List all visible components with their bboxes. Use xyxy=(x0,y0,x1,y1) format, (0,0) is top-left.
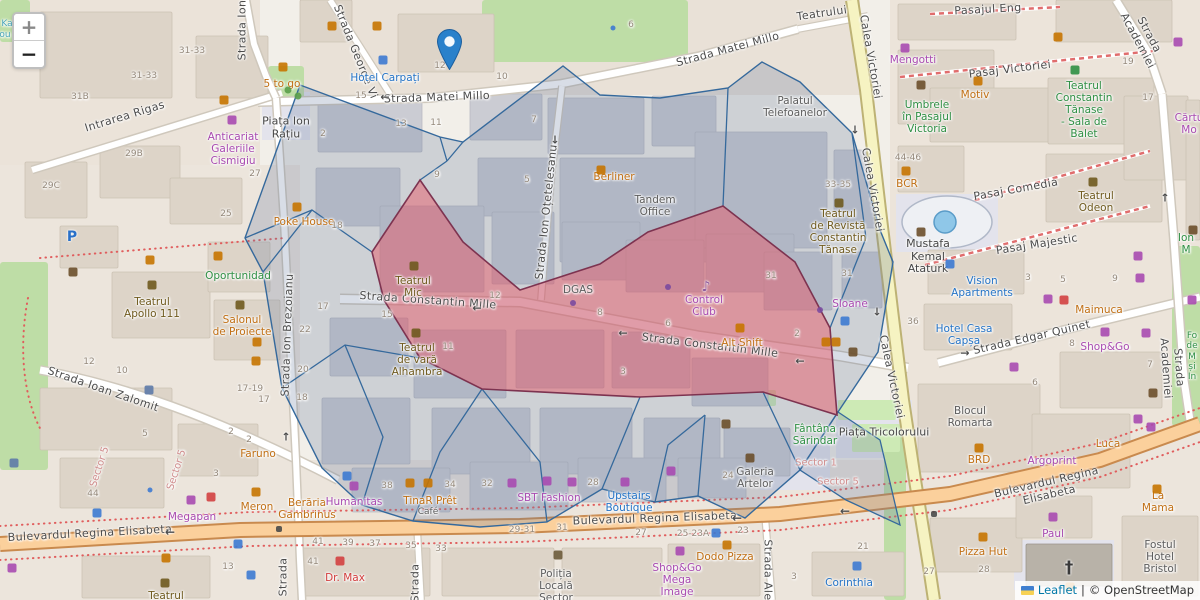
housenumber: 18 xyxy=(296,393,307,403)
housenumber: 24 xyxy=(722,471,733,481)
street-strada-constantin-mille-2: Strada Constantin Mille xyxy=(641,331,779,360)
theatre-masks-icon xyxy=(412,329,421,338)
poi-ion-m: Ion M xyxy=(1178,232,1194,256)
housenumber: 7 xyxy=(1147,360,1153,370)
poi-salonul-de-proiecte: Salonul de Proiecte xyxy=(213,314,272,338)
clothes-icon xyxy=(543,477,552,486)
bus-stop-icon xyxy=(712,529,721,538)
fastfood-icon xyxy=(214,252,223,261)
poi-dgas: DGAS xyxy=(563,284,593,296)
poi-poke-house: Poke House xyxy=(274,216,335,228)
housenumber: 2 xyxy=(246,435,252,445)
monument-icon xyxy=(69,268,78,277)
poi-pizza-hut: Pizza Hut xyxy=(959,546,1007,558)
poi-faruno: Faruno xyxy=(240,448,276,460)
poi-teatrul-constantin-tanase-sala-de-balet: Teatrul Constantin Tănase - Sala de Bale… xyxy=(1056,80,1113,140)
housenumber: 21 xyxy=(857,542,868,552)
dot-icon xyxy=(611,26,616,31)
housenumber: 20 xyxy=(297,365,308,375)
street-strada-ion-brezoianu: Strada Ion Brezoianu xyxy=(280,273,297,396)
monument-icon xyxy=(917,81,926,90)
money-icon xyxy=(1149,389,1158,398)
poi-berliner: Berliner xyxy=(593,171,634,183)
zoom-out-button[interactable]: − xyxy=(14,41,44,67)
street-calea-victoriei-2: Calea Victoriei xyxy=(858,147,885,233)
housenumber: 31 xyxy=(556,523,567,533)
jeans-icon xyxy=(247,571,256,580)
theatre-masks-icon xyxy=(161,579,170,588)
theatre-masks-icon xyxy=(236,301,245,310)
housenumber: 3 xyxy=(1025,273,1031,283)
housenumber: 35 xyxy=(405,541,416,551)
street-strada-george-v: Strada George Vi xyxy=(330,3,379,101)
street-strada-constantin-mille-1: Strada Constantin Mille xyxy=(359,290,497,312)
poi-alt-shift: Alt Shift xyxy=(721,337,762,349)
poi-shop-and-go-mega-image: Shop&Go Mega Image xyxy=(652,562,701,598)
housenumber: 37 xyxy=(369,539,380,549)
poi-mengotti: Mengotti xyxy=(890,54,936,66)
poi-teatrul-apollo-111: Teatrul Apollo 111 xyxy=(124,296,180,320)
artwork-paw-icon xyxy=(746,454,755,463)
poi-cafe: Café xyxy=(418,507,439,517)
restaurant-icon xyxy=(162,554,171,563)
housenumber: 36 xyxy=(907,317,918,327)
housenumber: 5 xyxy=(524,175,530,185)
housenumber: 13 xyxy=(222,562,233,572)
poi-politia-locala-sector: Poliția Locală Sector xyxy=(539,568,573,600)
tree-icon xyxy=(295,93,302,100)
street-strada-matei-millo-1: Strada Matei Millo xyxy=(384,90,491,106)
housenumber: 31-33 xyxy=(131,71,157,81)
oneway-arrow-icon: ↓ xyxy=(872,306,881,319)
nightclub-dot-icon xyxy=(817,307,823,313)
oneway-arrow-icon: → xyxy=(960,347,969,360)
restaurant-icon xyxy=(373,22,382,31)
housenumber: 38 xyxy=(381,481,392,491)
crown-icon xyxy=(568,478,577,487)
label-sector-5-a: Sector 5 xyxy=(817,476,859,488)
bakery-icon xyxy=(723,541,732,550)
housenumber: 29C xyxy=(42,181,60,191)
jeans-icon xyxy=(853,562,862,571)
housenumber: 23 xyxy=(737,526,748,536)
cafe-icon xyxy=(146,256,155,265)
map-marker-pin[interactable] xyxy=(437,29,462,70)
poi-teatrul-mic: Teatrul Mic xyxy=(395,275,431,299)
zoom-control: + − xyxy=(12,12,46,69)
housenumber: 29B xyxy=(125,149,143,159)
clothes-icon xyxy=(621,478,630,487)
pedestrian-icon xyxy=(10,459,19,468)
housenumber: 5 xyxy=(1060,275,1066,285)
housenumber: 3 xyxy=(620,367,626,377)
crown-icon xyxy=(676,547,685,556)
housenumber: 11 xyxy=(430,118,441,128)
poi-sloane: Sloane xyxy=(832,298,868,310)
cafe-icon xyxy=(252,488,261,497)
teapot-icon xyxy=(1136,274,1145,283)
poi-oportunidad: Oportunidad xyxy=(205,270,271,282)
poi-meron: Meron xyxy=(241,501,274,513)
restaurant-icon xyxy=(1153,485,1162,494)
housenumber: 13 xyxy=(395,119,406,129)
street-bulevardul-regina-elisabeta-3: Bulevardul Regina Elisabeta xyxy=(971,460,1125,519)
poi-mustafa-kemal-ataturk: Mustafa Kemal Ataturk xyxy=(906,238,950,276)
oneway-arrow-icon: ↑ xyxy=(1160,192,1169,205)
map-labels-layer: Strada Matei MilloStrada Matei MilloStra… xyxy=(0,0,1200,600)
poi-fragment-green: Fo de M și In xyxy=(1186,331,1197,383)
label-sector-5-b: Sector 5 xyxy=(88,445,112,488)
housenumber: 28 xyxy=(587,478,598,488)
poi-megapan: Megapan xyxy=(168,511,216,523)
poi-corinthia: Corinthia xyxy=(825,577,873,589)
bus-stop-icon xyxy=(234,540,243,549)
shoes-icon xyxy=(508,479,517,488)
housenumber: 31B xyxy=(71,92,89,102)
housenumber: 28 xyxy=(978,565,989,575)
housenumber: 17-19 xyxy=(237,384,263,394)
street-strada-edgar-quinet: Strada Edgar Quinet xyxy=(972,318,1092,357)
bar-icon xyxy=(974,77,983,86)
housenumber: 2 xyxy=(794,329,800,339)
poi-teatrul-odeon: Teatrul Odeon xyxy=(1078,190,1114,214)
housenumber: 32 xyxy=(481,479,492,489)
cafe-icon xyxy=(406,479,415,488)
poi-upstairs-boutique: Upstairs Boutique xyxy=(605,490,652,514)
osm-attribution-link[interactable]: © OpenStreetMap xyxy=(1089,583,1194,597)
church-cross-icon: † xyxy=(1065,558,1074,578)
housenumber: 25-23A xyxy=(677,529,709,539)
poi-beraria-gambrinus: Berăria Gambrinus xyxy=(278,497,335,521)
street-strada-s2: Strada xyxy=(410,564,423,600)
bank-icon xyxy=(902,167,911,176)
oneway-arrow-icon: ↑ xyxy=(281,431,290,444)
street-teatrului: Teatrului xyxy=(796,4,848,24)
oneway-arrow-icon: ↓ xyxy=(850,124,859,137)
theatre-masks-icon xyxy=(410,262,419,271)
housenumber: 15 xyxy=(381,310,392,320)
statue-icon xyxy=(1189,226,1198,235)
traffic-light-icon xyxy=(276,526,282,532)
poi-hotel-carpati: Hotel Carpați xyxy=(350,72,419,84)
poi-la-mama: La Mama xyxy=(1137,490,1179,514)
books-icon xyxy=(1134,415,1143,424)
housenumber: 31 xyxy=(765,271,776,281)
theatre-masks-icon xyxy=(1089,178,1098,187)
housenumber: 17 xyxy=(1142,93,1153,103)
attribution-separator: | xyxy=(1081,583,1085,597)
poi-bcr: BCR xyxy=(896,178,918,190)
crown-icon xyxy=(1049,513,1058,522)
housenumber: 18 xyxy=(331,221,342,231)
music-note-icon: ♪ xyxy=(702,279,711,295)
poi-hotel-casa-capsa: Hotel Casa Capșa xyxy=(936,323,993,347)
housenumber: 33-35 xyxy=(825,180,851,190)
street-calea-victoriei-3: Calea Victoriei xyxy=(876,334,906,420)
street-pasaj-majestic: Pasaj Majestic xyxy=(995,232,1079,257)
castle-icon xyxy=(722,420,731,429)
housenumber: 31-33 xyxy=(179,46,205,56)
poi-dr-max: Dr. Max xyxy=(325,572,365,584)
street-strada-ion: Strada Ion xyxy=(237,0,250,60)
bus-stop-icon xyxy=(93,509,102,518)
pharmacy-icon xyxy=(207,493,216,502)
book-icon xyxy=(1188,296,1197,305)
nightclub-dot-icon xyxy=(570,300,576,306)
parking-icon: P xyxy=(67,229,77,245)
oneway-arrow-icon: ← xyxy=(618,327,627,340)
oneway-arrow-icon: ← xyxy=(380,91,389,104)
poi-5-to-go: 5 to go xyxy=(264,78,301,90)
poi-teatrul-bottom: Teatrul xyxy=(148,590,184,600)
housenumber: 34 xyxy=(444,480,455,490)
traffic-light-icon xyxy=(931,511,937,517)
books-icon xyxy=(228,116,237,125)
restaurant-icon xyxy=(736,324,745,333)
housenumber: 7 xyxy=(531,115,537,125)
books-icon xyxy=(1142,329,1151,338)
housenumber: 15 xyxy=(355,91,366,101)
street-bulevardul-regina-elisabeta-1: Bulevardul Regina Elisabeta xyxy=(7,523,172,544)
poi-fostul-hotel-bristol: Fostul Hotel Bristol xyxy=(1143,539,1176,575)
oneway-arrow-icon: ↓ xyxy=(550,134,559,147)
street-strada-ale: Strada Ale xyxy=(761,539,774,600)
housenumber: 44-46 xyxy=(895,153,921,163)
poi-humanitas: Humanitas xyxy=(326,496,383,508)
cafe-icon xyxy=(279,63,288,72)
jeans-icon xyxy=(946,260,955,269)
housenumber: 8 xyxy=(1069,339,1075,349)
poi-luca: Luca xyxy=(1096,438,1121,450)
poi-fragment-cyan-2: ou xyxy=(0,30,11,40)
theatre-masks-icon xyxy=(148,281,157,290)
cafe-icon xyxy=(220,96,229,105)
statue-icon xyxy=(917,228,926,237)
housenumber: 6 xyxy=(628,20,634,30)
poi-paul: Paul xyxy=(1042,528,1064,540)
poi-fantana-sarindar: Fântâna Sărindar xyxy=(793,423,837,447)
housenumber: 39 xyxy=(342,538,353,548)
housenumber: 2 xyxy=(320,129,326,139)
oneway-arrow-icon: ← xyxy=(840,504,850,518)
housenumber: 27 xyxy=(249,169,260,179)
street-strada-academiei-2: Strada Academiei xyxy=(1157,337,1186,400)
jeans-icon xyxy=(343,472,352,481)
poi-motiv: Motiv xyxy=(961,89,990,101)
housenumber: 10 xyxy=(496,72,507,82)
poi-maimuca: Maimuca xyxy=(1075,304,1123,316)
pedestrian-icon xyxy=(145,386,154,395)
housenumber: 27 xyxy=(635,528,646,538)
poi-piata-ion-ratiu: Piața Ion Rațiu xyxy=(262,115,310,140)
basket-icon xyxy=(1101,328,1110,337)
pharmacy-icon xyxy=(336,557,345,566)
jeans-icon xyxy=(841,317,850,326)
poi-galeria-artelor: Galeria Artelor xyxy=(736,466,774,490)
street-intrarea-rigas: Intrarea Rigas xyxy=(84,99,167,135)
poi-piata-tricolorului: Piața Tricolorului xyxy=(839,427,930,440)
dot-icon xyxy=(148,488,153,493)
poi-tandem-office: Tandem Office xyxy=(634,194,675,218)
running-icon xyxy=(1071,66,1080,75)
poi-carturesti: Cărtu Mo xyxy=(1175,112,1200,136)
leaflet-attribution-link[interactable]: Leaflet xyxy=(1038,583,1077,597)
poi-umbrele-in-pasajul-victoria: Umbrele în Pasajul Victoria xyxy=(902,99,952,135)
housenumber: 6 xyxy=(665,319,671,329)
oneway-arrow-icon: ← xyxy=(472,302,481,315)
restaurant-icon xyxy=(1054,33,1063,42)
housenumber: 6 xyxy=(1032,378,1038,388)
oneway-arrow-icon: ← xyxy=(165,525,175,539)
awning-icon xyxy=(1147,423,1156,432)
ukraine-flag-icon xyxy=(1021,586,1034,595)
tv-icon xyxy=(849,348,858,357)
poi-vision-apartments: Vision Apartments xyxy=(951,275,1013,299)
poi-teatrul-de-revista-constantin-tanase: Teatrul de Revistă Constantin Tănase xyxy=(810,208,867,256)
restaurant-icon xyxy=(979,533,988,542)
housenumber: 2 xyxy=(228,427,234,437)
housenumber: 12 xyxy=(489,291,500,301)
restaurant-icon xyxy=(252,357,261,366)
poi-tinar-pret: TinaR Prêt xyxy=(403,495,457,507)
street-pasajul-englez: Pasajul Eng xyxy=(954,2,1022,18)
housenumber: 27 xyxy=(923,567,934,577)
housenumber: 29-31 xyxy=(509,525,535,535)
housenumber: 17 xyxy=(258,395,269,405)
restaurant-icon xyxy=(832,338,841,347)
shop-icon xyxy=(187,496,196,505)
books-icon xyxy=(350,482,359,491)
cafe-icon xyxy=(328,22,337,31)
fastfood-icon xyxy=(597,166,606,175)
street-strada-s1: Strada xyxy=(278,558,291,597)
map-canvas[interactable]: Strada Matei MilloStrada Matei MilloStra… xyxy=(0,0,1200,600)
housenumber: 5 xyxy=(142,429,148,439)
housenumber: 8 xyxy=(597,308,603,318)
poi-blocul-romarta: Blocul Romarta xyxy=(948,405,993,429)
attribution-bar: Leaflet | © OpenStreetMap xyxy=(1015,581,1200,600)
street-pasaj-victoriei: Pasaj Victoriei xyxy=(968,59,1052,82)
housenumber: 3 xyxy=(791,572,797,582)
fastfood-icon xyxy=(293,203,302,212)
theatre-masks-icon xyxy=(835,199,844,208)
housenumber: 41 xyxy=(307,557,318,567)
housenumber: 17 xyxy=(317,302,328,312)
poi-palatul-telefoanelor: Palatul Telefoanelor xyxy=(763,95,827,119)
poi-brd: BRD xyxy=(968,454,991,466)
print-icon xyxy=(1174,38,1183,47)
housenumber: 44 xyxy=(87,489,98,499)
oneway-arrow-icon: ← xyxy=(732,511,742,525)
shop-icon xyxy=(8,564,17,573)
housenumber: 19 xyxy=(1122,57,1133,67)
shop-icon xyxy=(1044,295,1053,304)
restaurant-icon xyxy=(822,338,831,347)
flower-icon xyxy=(1010,363,1019,372)
street-bulevardul-regina-elisabeta-2: Bulevardul Regina Elisabeta xyxy=(572,510,737,528)
housenumber: 33 xyxy=(435,544,446,554)
fastfood-icon xyxy=(253,338,262,347)
bank-icon xyxy=(975,444,984,453)
street-strada-academiei-1: Strada Academiei xyxy=(1118,5,1169,71)
poi-shop-and-go: Shop&Go xyxy=(1080,341,1129,353)
label-sector-1: Sector 1 xyxy=(795,457,837,469)
street-calea-victoriei-1: Calea Victoriei xyxy=(856,14,883,100)
phone-icon xyxy=(379,56,388,65)
police-icon xyxy=(554,551,563,560)
flower-icon xyxy=(1134,252,1143,261)
street-pasaj-comedia: Pasaj Comedia xyxy=(973,176,1060,203)
street-strada-matei-millo-2: Strada Matei Millo xyxy=(675,30,781,70)
housenumber: 41 xyxy=(312,537,323,547)
label-sector-5-c: Sector 5 xyxy=(165,448,189,491)
poi-sbt-fashion: SBT Fashion xyxy=(517,492,580,504)
housenumber: 25 xyxy=(220,209,231,219)
poi-control-club: Control Club xyxy=(685,294,723,318)
housenumber: 22 xyxy=(299,325,310,335)
poi-teatrul-de-vara-alhambra: Teatrul de vară Alhambra xyxy=(392,342,443,378)
poi-dodo-pizza: Dodo Pizza xyxy=(696,551,753,563)
housenumber: 3 xyxy=(213,469,219,479)
housenumber: 12 xyxy=(83,357,94,367)
cafe-icon xyxy=(424,479,433,488)
poi-argoprint: Argoprint xyxy=(1027,455,1076,467)
nightclub-dot-icon xyxy=(665,284,671,290)
housenumber: 9 xyxy=(1112,274,1118,284)
street-strada-ioan-zalomit: Strada Ioan Zalomit xyxy=(46,365,160,415)
books-icon xyxy=(667,467,676,476)
poi-anticariat-galeriile-cismigiu: Anticariat Galeriile Cismigiu xyxy=(208,131,259,167)
housenumber: 11 xyxy=(442,342,453,352)
tree-icon xyxy=(285,87,292,94)
poi-fragment-cyan-1: Ka xyxy=(1,19,12,29)
shop-red-icon xyxy=(1060,296,1069,305)
street-strada-ion-otetelesanu: Strada Ion Oțetelesanu xyxy=(534,144,561,281)
housenumber: 10 xyxy=(116,366,127,376)
housenumber: 31 xyxy=(841,269,852,279)
oneway-arrow-icon: ← xyxy=(795,355,804,368)
housenumber: 9 xyxy=(434,170,440,180)
clothes-icon xyxy=(901,44,910,53)
zoom-in-button[interactable]: + xyxy=(14,14,44,41)
